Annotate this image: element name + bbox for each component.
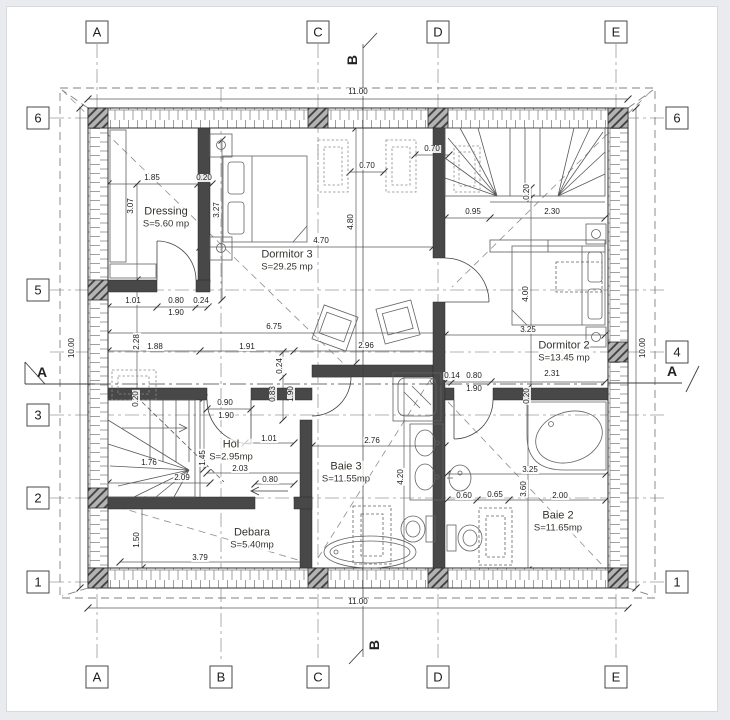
room-area: S=5.60 mp (143, 219, 189, 230)
axis-bubble-bottom: C (307, 666, 330, 689)
room-label: Baie 3S=11.55mp (322, 461, 370, 486)
axis-bubble-bottom: E (605, 666, 628, 689)
axis-bubble-left: 2 (27, 487, 50, 510)
section-label: B (345, 55, 359, 65)
axis-bubble-right: 6 (666, 107, 689, 130)
dim-label: 0.24 (276, 357, 284, 375)
dim-label: 1.90 (287, 385, 295, 403)
dim-label: 11.00 (347, 598, 368, 606)
room-name: Hol (209, 439, 253, 452)
room-area: S=5.40mp (230, 540, 274, 551)
floor-plan-screenshot: 11.0011.0010.0010.001.850.203.073.270.70… (0, 0, 730, 720)
axis-bubble-bottom: B (210, 666, 233, 689)
dim-label: 3.60 (520, 480, 528, 498)
dim-label: 1.85 (143, 174, 161, 182)
dim-label: 2.76 (363, 437, 381, 445)
dim-label: 0.80 (167, 297, 185, 305)
room-name: Debara (230, 527, 274, 540)
dim-label: 2.09 (173, 474, 191, 482)
axis-bubble-bottom: A (86, 666, 109, 689)
dim-label: 3.27 (213, 201, 221, 219)
section-label: A (667, 364, 677, 378)
dim-label: 4.00 (522, 285, 530, 303)
dim-label: 0.65 (486, 491, 504, 499)
axis-bubble-top: D (427, 21, 450, 44)
dim-label: 11.00 (347, 88, 368, 96)
dim-label: 2.28 (133, 333, 141, 351)
room-label: HolS=2.95mp (209, 439, 253, 464)
axis-bubble-left: 6 (27, 107, 50, 130)
axis-bubble-left: 5 (27, 279, 50, 302)
axis-bubble-right: 1 (666, 571, 689, 594)
room-area: S=11.55mp (322, 474, 370, 485)
dim-label: 4.20 (397, 468, 405, 486)
dim-label: 1.45 (199, 449, 207, 467)
section-label: A (37, 365, 47, 379)
dim-label: 3.79 (191, 554, 209, 562)
room-label: DressingS=5.60 mp (143, 206, 189, 231)
room-label: DebaraS=5.40mp (230, 527, 274, 552)
dim-label: 0.90 (216, 399, 234, 407)
dim-label: 1.90 (217, 412, 235, 420)
dim-label: 10.00 (68, 337, 76, 359)
dim-label: 0.80 (261, 476, 279, 484)
dim-label: 4.80 (347, 213, 355, 231)
dim-label: 1.91 (238, 343, 256, 351)
room-name: Baie 3 (322, 461, 370, 474)
room-area: S=29.25 mp (261, 262, 313, 273)
text-labels-layer: 11.0011.0010.0010.001.850.203.073.270.70… (0, 0, 730, 720)
section-label: B (367, 640, 381, 650)
dim-label: 0.14 (443, 372, 461, 380)
room-area: S=11.65mp (534, 523, 582, 534)
axis-bubble-bottom: D (427, 666, 450, 689)
room-name: Dressing (143, 206, 189, 219)
axis-bubble-right: 4 (666, 341, 689, 364)
room-name: Dormitor 3 (261, 249, 313, 262)
dim-label: 0.20 (523, 183, 531, 201)
dim-label: 1.90 (465, 385, 483, 393)
room-area: S=13.45 mp (538, 353, 590, 364)
dim-label: 0.20 (195, 174, 213, 182)
dim-label: 2.00 (551, 492, 569, 500)
dim-label: 6.75 (265, 323, 283, 331)
room-name: Baie 2 (534, 510, 582, 523)
dim-label: 0.80 (465, 372, 483, 380)
dim-label: 1.01 (260, 435, 278, 443)
dim-label: 2.30 (543, 208, 561, 216)
dim-label: 0.60 (455, 492, 473, 500)
room-area: S=2.95mp (209, 452, 253, 463)
dim-label: 0.20 (523, 387, 531, 405)
dim-label: 0.20 (132, 390, 140, 408)
dim-label: 3.07 (127, 197, 135, 215)
dim-label: 3.25 (521, 466, 539, 474)
axis-bubble-top: A (86, 21, 109, 44)
dim-label: 4.70 (312, 237, 330, 245)
room-name: Dormitor 2 (538, 340, 590, 353)
dim-label: 1.76 (140, 459, 158, 467)
dim-label: 1.90 (167, 309, 185, 317)
dim-label: 0.95 (464, 208, 482, 216)
dim-label: 0.70 (358, 162, 376, 170)
dim-label: 1.01 (124, 297, 142, 305)
dim-label: 1.50 (133, 531, 141, 549)
room-label: Baie 2S=11.65mp (534, 510, 582, 535)
axis-bubble-top: E (605, 21, 628, 44)
axis-bubble-left: 3 (27, 404, 50, 427)
dim-label: 0.83 (269, 385, 277, 403)
dim-label: 3.25 (519, 326, 537, 334)
dim-label: 10.00 (639, 337, 647, 359)
axis-bubble-left: 1 (27, 571, 50, 594)
dim-label: 0.70 (423, 145, 441, 153)
dim-label: 2.03 (231, 465, 249, 473)
axis-bubble-top: C (307, 21, 330, 44)
dim-label: 1.88 (146, 343, 164, 351)
room-label: Dormitor 3S=29.25 mp (261, 249, 313, 274)
dim-label: 2.31 (543, 370, 561, 378)
room-label: Dormitor 2S=13.45 mp (538, 340, 590, 365)
dim-label: 2.96 (357, 342, 375, 350)
dim-label: 0.24 (192, 297, 210, 305)
